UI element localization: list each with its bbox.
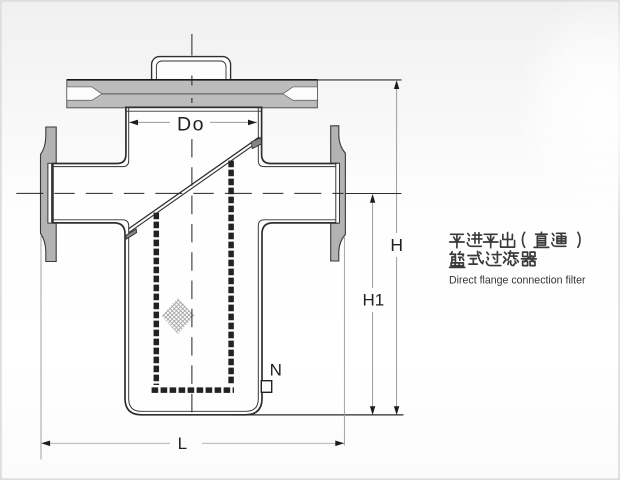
svg-text:L: L [178, 434, 187, 453]
svg-text:Do: Do [177, 113, 205, 135]
svg-text:Direct flange connection filte: Direct flange connection filter [449, 275, 586, 287]
svg-text:N: N [270, 361, 282, 380]
svg-text:H: H [390, 235, 403, 255]
svg-text:H1: H1 [363, 291, 385, 310]
